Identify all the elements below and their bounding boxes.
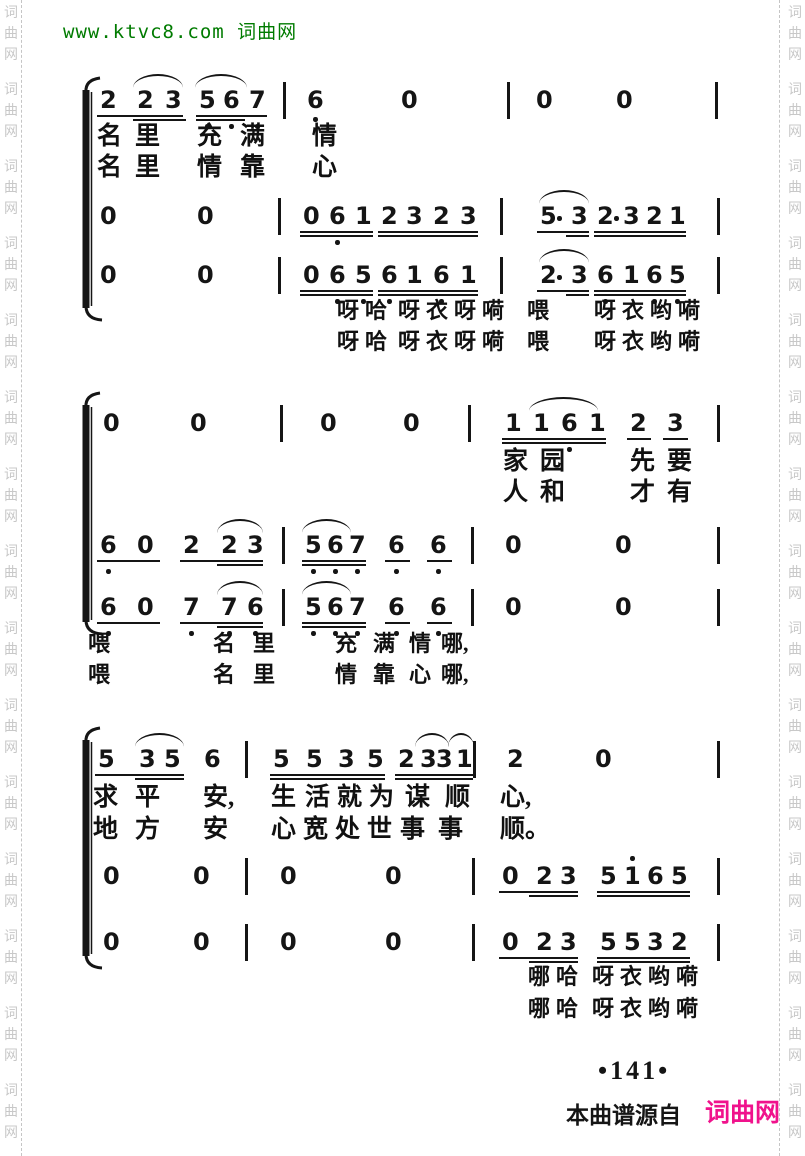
- beam-line: [594, 231, 686, 233]
- jianpu-note: 2: [540, 263, 557, 287]
- jianpu-note: 2: [646, 204, 663, 228]
- jianpu-note: 1: [355, 204, 372, 228]
- jianpu-note: 5: [355, 263, 372, 287]
- jianpu-note: 0: [197, 263, 214, 287]
- octave-dot: [436, 569, 441, 574]
- beam-line: [300, 231, 373, 233]
- jianpu-note: 6: [381, 263, 398, 287]
- barline: [717, 527, 720, 564]
- octave-dot: [394, 569, 399, 574]
- beam-line: [217, 626, 263, 628]
- jianpu-note: 1: [505, 411, 522, 435]
- jianpu-note: 0: [320, 411, 337, 435]
- lyric-run: 呀哈: [337, 300, 393, 322]
- augmentation-dot: [557, 275, 562, 280]
- jianpu-note: 3: [139, 747, 156, 771]
- beam-line: [594, 290, 686, 292]
- octave-dot: [313, 117, 318, 122]
- barline: [472, 858, 475, 895]
- jianpu-note: 2: [137, 88, 154, 112]
- lyric-run: 就: [337, 785, 362, 810]
- source-note: 本曲谱源自: [566, 1096, 681, 1130]
- jianpu-note: 0: [505, 533, 522, 557]
- lyric-run: 哪哈: [528, 966, 584, 988]
- brace-stroke: [86, 954, 102, 968]
- beam-line: [385, 560, 410, 562]
- jianpu-note: 0: [280, 864, 297, 888]
- jianpu-note: 6: [247, 595, 264, 619]
- lyric-run: 有: [667, 480, 692, 505]
- octave-dot: [311, 631, 316, 636]
- lyric-run: 呀衣呀嗬: [398, 300, 510, 322]
- beam-line: [378, 290, 478, 292]
- jianpu-note: 3: [420, 747, 437, 771]
- beam-line: [395, 774, 473, 776]
- jianpu-note: 2: [597, 204, 614, 228]
- jianpu-note: 7: [349, 595, 366, 619]
- jianpu-note: 3: [623, 204, 640, 228]
- jianpu-note: 5: [600, 864, 617, 888]
- lyric-run: 安,: [203, 785, 234, 810]
- jianpu-note: 5: [367, 747, 384, 771]
- jianpu-note: 7: [349, 533, 366, 557]
- jianpu-note: 2: [536, 864, 553, 888]
- jianpu-note: 0: [303, 204, 320, 228]
- jianpu-note: 6: [307, 88, 324, 112]
- lyric-run: 里: [253, 633, 275, 655]
- jianpu-note: 1: [624, 864, 641, 888]
- jianpu-note: 5: [305, 533, 322, 557]
- lyric-run: 才: [630, 480, 655, 505]
- lyric-run: 呀哈: [337, 331, 393, 353]
- beam-line: [502, 442, 606, 444]
- lyric-run: 园: [540, 449, 565, 474]
- jianpu-note: 2: [381, 204, 398, 228]
- octave-dot: [335, 240, 340, 245]
- jianpu-note: 6: [329, 204, 346, 228]
- jianpu-note: 3: [247, 533, 264, 557]
- lyric-run: 心: [271, 817, 296, 842]
- jianpu-note: 0: [103, 411, 120, 435]
- lyric-run: 名: [97, 124, 122, 149]
- lyric-run: 靠: [373, 664, 395, 686]
- jianpu-note: 6: [204, 747, 221, 771]
- octave-dot: [567, 447, 572, 452]
- jianpu-note: 1: [589, 411, 606, 435]
- beam-line: [302, 622, 366, 624]
- lyric-run: 里: [253, 664, 275, 686]
- octave-dot: [630, 856, 635, 861]
- brace-stroke: [86, 78, 100, 92]
- jianpu-note: 3: [667, 411, 684, 435]
- beam-line: [566, 235, 589, 237]
- jianpu-note: 1: [460, 263, 477, 287]
- lyric-run: 情: [312, 124, 337, 149]
- lyric-run: 情: [409, 633, 431, 655]
- jianpu-note: 2: [398, 747, 415, 771]
- beam-line: [663, 438, 688, 440]
- lyric-run: 情: [335, 664, 357, 686]
- lyric-run: 里: [135, 124, 160, 149]
- jianpu-note: 5: [540, 204, 557, 228]
- jianpu-note: 1: [406, 263, 423, 287]
- barline: [282, 589, 285, 626]
- beam-line: [270, 774, 385, 776]
- barline: [468, 405, 471, 442]
- jianpu-note: 3: [560, 864, 577, 888]
- octave-dot: [189, 631, 194, 636]
- barline: [472, 924, 475, 961]
- lyric-run: 顺: [445, 785, 470, 810]
- lyric-run: 充: [197, 124, 222, 149]
- lyric-run: 喂: [527, 300, 555, 322]
- beam-line: [597, 895, 690, 897]
- beam-line: [302, 626, 366, 628]
- lyric-run: 名: [213, 633, 235, 655]
- lyric-run: 喂: [88, 664, 110, 686]
- lyric-run: 地: [93, 817, 118, 842]
- jianpu-note: 3: [571, 263, 588, 287]
- lyric-run: 要: [667, 449, 692, 474]
- jianpu-note: 0: [103, 864, 120, 888]
- music-score: 2235676000名里充满情名里情靠心00061232353232100065…: [0, 0, 805, 1156]
- jianpu-note: 0: [595, 747, 612, 771]
- beam-line: [97, 622, 160, 624]
- jianpu-note: 2: [100, 88, 117, 112]
- jianpu-note: 3: [460, 204, 477, 228]
- beam-line: [427, 622, 452, 624]
- lyric-run: 家: [503, 449, 528, 474]
- beam-line: [594, 294, 686, 296]
- jianpu-note: 6: [100, 595, 117, 619]
- lyric-run: 充: [335, 633, 357, 655]
- beam-line: [502, 438, 606, 440]
- brace-stroke: [86, 306, 102, 320]
- jianpu-note: 6: [327, 595, 344, 619]
- beam-line: [300, 290, 373, 292]
- lyric-run: 和: [540, 480, 565, 505]
- jianpu-note: 3: [338, 747, 355, 771]
- beam-line: [97, 560, 160, 562]
- barline: [280, 405, 283, 442]
- jianpu-note: 0: [403, 411, 420, 435]
- page-number: •141•: [598, 1056, 670, 1086]
- jianpu-note: 6: [388, 533, 405, 557]
- beam-line: [395, 778, 473, 780]
- jianpu-note: 0: [137, 595, 154, 619]
- jianpu-note: 0: [100, 263, 117, 287]
- octave-dot: [436, 631, 441, 636]
- beam-line: [529, 895, 578, 897]
- jianpu-note: 5: [306, 747, 323, 771]
- lyric-run: 方: [135, 817, 160, 842]
- beam-line: [378, 235, 478, 237]
- beam-line: [95, 774, 184, 776]
- beam-line: [499, 891, 578, 893]
- jianpu-note: 5: [164, 747, 181, 771]
- barline: [717, 257, 720, 294]
- barline: [471, 527, 474, 564]
- brace-stroke: [86, 393, 100, 407]
- jianpu-note: 5: [669, 263, 686, 287]
- jianpu-note: 7: [221, 595, 238, 619]
- jianpu-note: 1: [669, 204, 686, 228]
- octave-dot: [333, 569, 338, 574]
- lyric-run: 呀衣哟嗬: [592, 966, 704, 988]
- lyric-run: 为: [369, 785, 394, 810]
- score-page: 词曲网词曲网词曲网词曲网词曲网词曲网词曲网词曲网词曲网词曲网词曲网词曲网词曲网词…: [0, 0, 805, 1156]
- jianpu-note: 7: [249, 88, 266, 112]
- beam-line: [97, 115, 183, 117]
- lyric-run: 事: [400, 817, 425, 842]
- jianpu-note: 0: [100, 204, 117, 228]
- octave-dot: [229, 124, 234, 129]
- lyric-run: 名: [97, 155, 122, 180]
- augmentation-dot: [614, 216, 619, 221]
- jianpu-note: 0: [385, 930, 402, 954]
- octave-dot: [355, 569, 360, 574]
- jianpu-note: 6: [327, 533, 344, 557]
- jianpu-note: 0: [385, 864, 402, 888]
- jianpu-note: 3: [406, 204, 423, 228]
- beam-line: [302, 564, 366, 566]
- jianpu-note: 6: [597, 263, 614, 287]
- beam-line: [597, 891, 690, 893]
- barline: [278, 198, 281, 235]
- jianpu-note: 1: [533, 411, 550, 435]
- beam-line: [217, 564, 263, 566]
- lyric-run: 靠: [240, 155, 265, 180]
- jianpu-note: 6: [430, 533, 447, 557]
- jianpu-note: 3: [560, 930, 577, 954]
- lyric-run: 满: [240, 124, 265, 149]
- jianpu-note: 0: [303, 263, 320, 287]
- jianpu-note: 6: [223, 88, 240, 112]
- barline: [245, 858, 248, 895]
- lyric-run: 事: [438, 817, 463, 842]
- barline: [245, 741, 248, 778]
- beam-line: [133, 119, 186, 121]
- beam-line: [597, 957, 690, 959]
- beam-line: [270, 778, 385, 780]
- jianpu-note: 6: [430, 595, 447, 619]
- beam-line: [302, 560, 366, 562]
- barline: [717, 198, 720, 235]
- jianpu-note: 5: [600, 930, 617, 954]
- jianpu-note: 3: [571, 204, 588, 228]
- barline: [717, 589, 720, 626]
- lyric-run: 哪,: [441, 633, 469, 655]
- jianpu-note: 0: [193, 930, 210, 954]
- jianpu-note: 0: [505, 595, 522, 619]
- beam-line: [378, 294, 478, 296]
- lyric-run: 哪哈: [528, 998, 584, 1020]
- lyric-run: 求: [93, 785, 118, 810]
- jianpu-note: 0: [536, 88, 553, 112]
- brand-text: 词曲网: [705, 1093, 780, 1129]
- beam-line: [537, 290, 589, 292]
- jianpu-note: 6: [561, 411, 578, 435]
- jianpu-note: 6: [329, 263, 346, 287]
- jianpu-note: 5: [199, 88, 216, 112]
- jianpu-note: 6: [646, 263, 663, 287]
- beam-line: [180, 560, 263, 562]
- barline: [500, 257, 503, 294]
- jianpu-note: 0: [103, 930, 120, 954]
- lyric-run: 心,: [500, 785, 531, 810]
- jianpu-note: 3: [165, 88, 182, 112]
- octave-dot: [106, 569, 111, 574]
- jianpu-note: 0: [502, 930, 519, 954]
- jianpu-note: 0: [616, 88, 633, 112]
- lyric-run: 心: [409, 664, 431, 686]
- lyric-run: 平: [135, 785, 160, 810]
- lyric-run: 处: [335, 817, 360, 842]
- beam-line: [300, 235, 373, 237]
- lyric-run: 谋: [405, 785, 430, 810]
- lyric-run: 情: [197, 155, 222, 180]
- lyric-run: 喂: [527, 331, 555, 353]
- lyric-run: 名: [213, 664, 235, 686]
- jianpu-note: 5: [624, 930, 641, 954]
- lyric-run: 活: [305, 785, 330, 810]
- lyric-run: 呀衣哟嗬: [594, 331, 706, 353]
- octave-dot: [311, 569, 316, 574]
- jianpu-note: 1: [623, 263, 640, 287]
- jianpu-note: 6: [388, 595, 405, 619]
- jianpu-note: 2: [221, 533, 238, 557]
- augmentation-dot: [557, 216, 562, 221]
- brace-stroke: [86, 728, 100, 742]
- beam-line: [499, 957, 578, 959]
- barline: [500, 198, 503, 235]
- beam-line: [180, 622, 263, 624]
- barline: [507, 82, 510, 119]
- lyric-run: 呀衣哟嗬: [592, 998, 704, 1020]
- barline: [471, 589, 474, 626]
- lyric-run: 哪,: [441, 664, 469, 686]
- jianpu-note: 2: [671, 930, 688, 954]
- jianpu-note: 0: [137, 533, 154, 557]
- jianpu-note: 0: [197, 204, 214, 228]
- lyric-run: 喂: [88, 633, 110, 655]
- jianpu-note: 6: [433, 263, 450, 287]
- lyric-run: 满: [373, 633, 395, 655]
- beam-line: [537, 231, 589, 233]
- lyric-run: 顺。: [500, 817, 550, 842]
- lyric-run: 世: [367, 817, 392, 842]
- lyric-run: 心: [312, 155, 337, 180]
- lyric-run: 先: [630, 449, 655, 474]
- barline: [717, 858, 720, 895]
- barline: [715, 82, 718, 119]
- jianpu-note: 2: [183, 533, 200, 557]
- jianpu-note: 0: [401, 88, 418, 112]
- jianpu-note: 0: [502, 864, 519, 888]
- barline: [717, 741, 720, 778]
- jianpu-note: 3: [436, 747, 453, 771]
- beam-line: [135, 778, 184, 780]
- beam-line: [385, 622, 410, 624]
- lyric-run: 里: [135, 155, 160, 180]
- lyric-run: 人: [503, 480, 528, 505]
- jianpu-note: 6: [100, 533, 117, 557]
- jianpu-note: 0: [190, 411, 207, 435]
- beam-line: [566, 294, 589, 296]
- beam-line: [427, 560, 452, 562]
- beam-line: [196, 115, 267, 117]
- jianpu-note: 2: [507, 747, 524, 771]
- jianpu-note: 6: [647, 864, 664, 888]
- jianpu-note: 5: [273, 747, 290, 771]
- jianpu-note: 0: [615, 595, 632, 619]
- jianpu-note: 5: [671, 864, 688, 888]
- jianpu-note: 7: [183, 595, 200, 619]
- jianpu-note: 5: [305, 595, 322, 619]
- jianpu-note: 3: [647, 930, 664, 954]
- barline: [717, 924, 720, 961]
- beam-line: [594, 235, 686, 237]
- beam-line: [378, 231, 478, 233]
- jianpu-note: 0: [615, 533, 632, 557]
- jianpu-note: 2: [630, 411, 647, 435]
- jianpu-note: 1: [456, 747, 473, 771]
- jianpu-note: 2: [433, 204, 450, 228]
- jianpu-note: 0: [280, 930, 297, 954]
- lyric-run: 安: [203, 817, 228, 842]
- lyric-run: 呀衣呀嗬: [398, 331, 510, 353]
- barline: [245, 924, 248, 961]
- barline: [282, 527, 285, 564]
- lyric-run: 生: [271, 785, 296, 810]
- barline: [717, 405, 720, 442]
- beam-line: [300, 294, 373, 296]
- lyric-run: 呀衣哟嗬: [594, 300, 706, 322]
- barline: [278, 257, 281, 294]
- beam-line: [196, 119, 245, 121]
- beam-line: [627, 438, 651, 440]
- barline: [283, 82, 286, 119]
- jianpu-note: 5: [98, 747, 115, 771]
- lyric-run: 宽: [303, 817, 328, 842]
- jianpu-note: 2: [536, 930, 553, 954]
- jianpu-note: 0: [193, 864, 210, 888]
